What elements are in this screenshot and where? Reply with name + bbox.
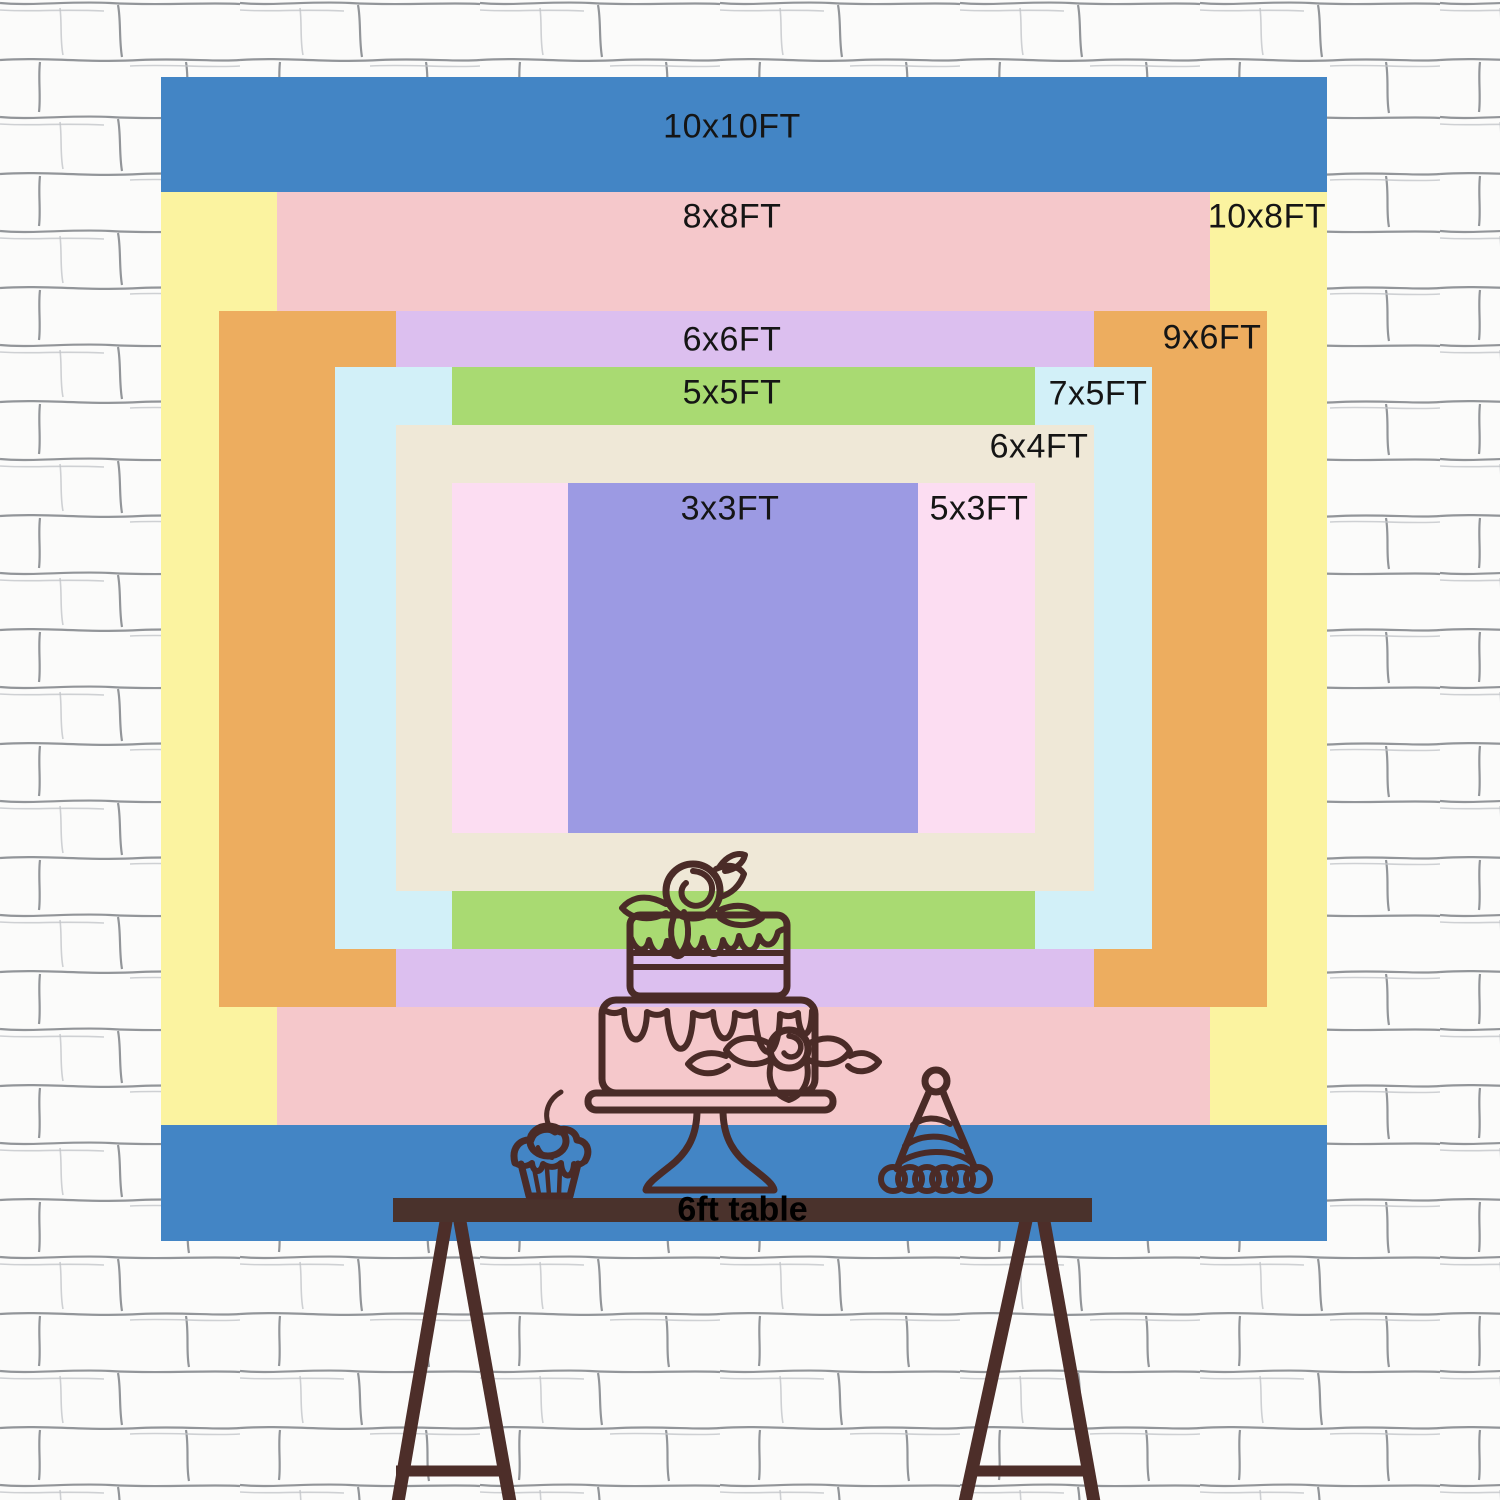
size-label-6x4ft: 6x4FT [990,428,1089,467]
size-rect-3x3ft [568,483,918,833]
size-label-5x5ft: 5x5FT [683,374,782,413]
size-label-3x3ft: 3x3FT [681,490,780,529]
cupcake-icon [514,1092,588,1196]
size-label-5x3ft: 5x3FT [930,490,1029,529]
size-label-10x8ft: 10x8FT [1208,198,1326,237]
right-trestle-leg-a [965,1216,1027,1500]
size-label-10x10ft: 10x10FT [663,108,801,147]
size-label-6x6ft: 6x6FT [683,321,782,360]
dessert-line-art [480,840,1020,1205]
left-trestle-leg-a [398,1216,447,1500]
size-chart-scene: 10x10FT10x8FT8x8FT9x6FT6x6FT7x5FT5x5FT6x… [0,0,1500,1500]
table-legs [380,1195,1110,1500]
size-label-9x6ft: 9x6FT [1163,319,1262,358]
tiered-cake-icon [588,854,879,1190]
size-label-8x8ft: 8x8FT [683,198,782,237]
right-trestle-leg-b [1043,1216,1094,1500]
left-trestle-leg-b [459,1216,510,1500]
size-label-7x5ft: 7x5FT [1049,375,1148,414]
party-hat-icon [881,1070,990,1191]
